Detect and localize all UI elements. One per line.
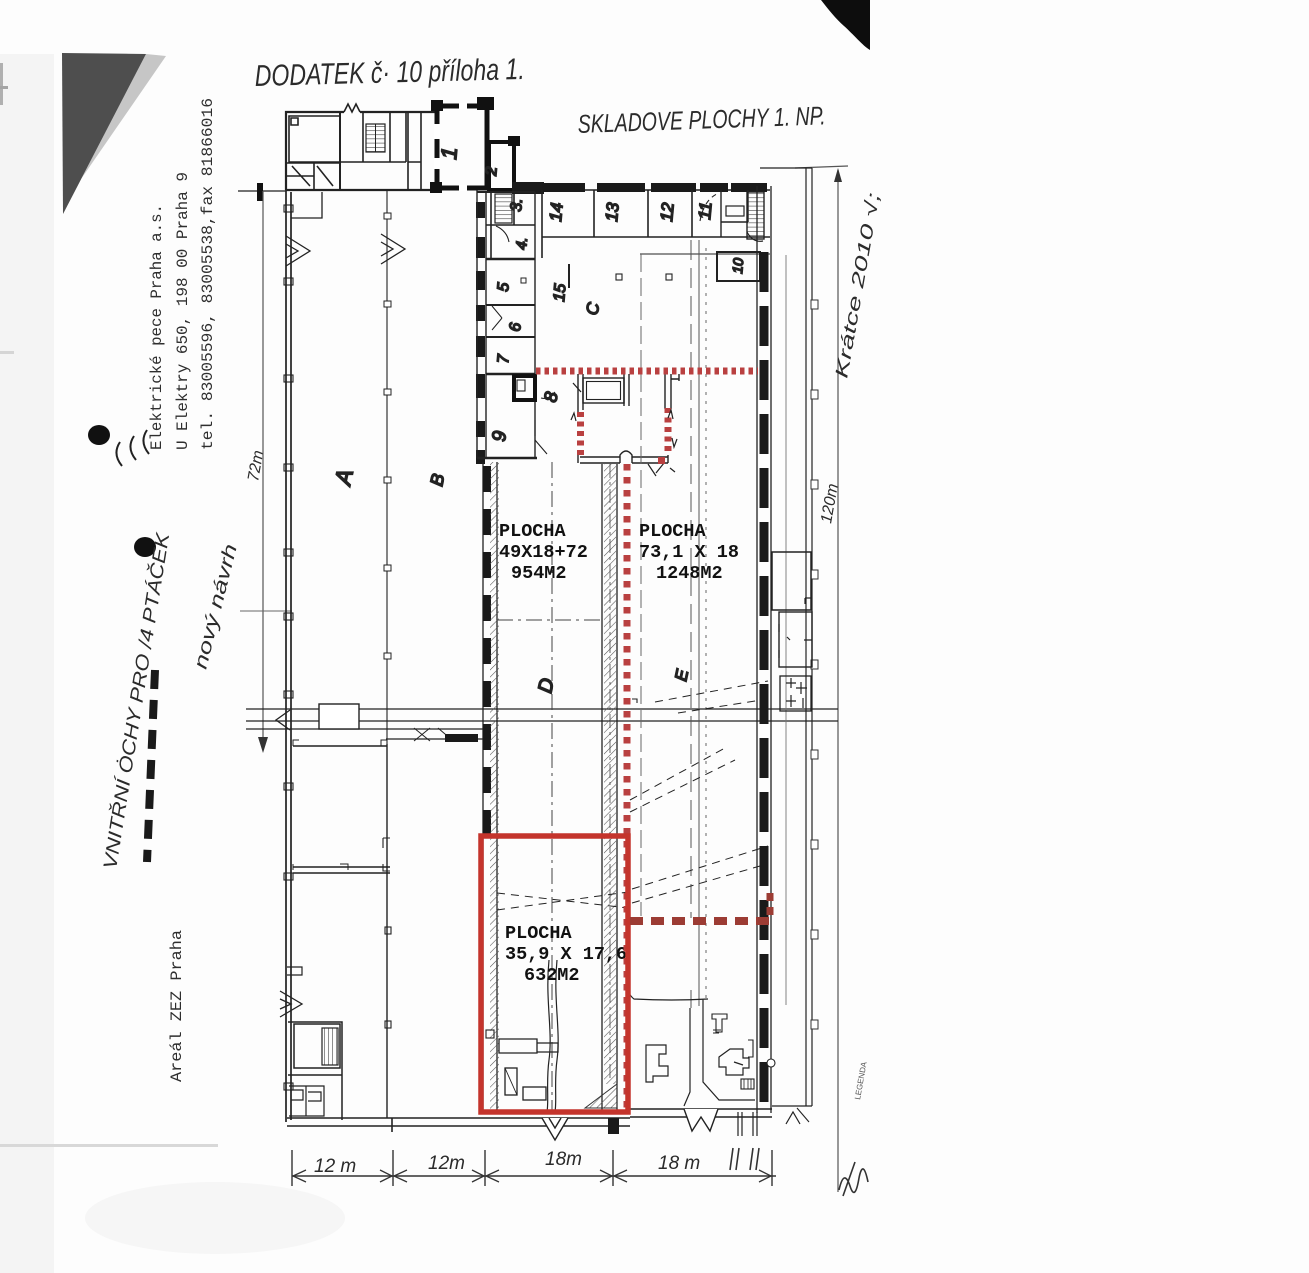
svg-text:3.: 3.: [508, 198, 526, 213]
svg-text:1248M2: 1248M2: [656, 563, 723, 584]
svg-text:tel. 83005596, 83005538,fax 81: tel. 83005596, 83005538,fax 81866016: [199, 98, 217, 450]
svg-text:6: 6: [507, 322, 525, 332]
svg-text:632M2: 632M2: [524, 965, 580, 986]
svg-text:PLOCHA: PLOCHA: [499, 521, 567, 542]
svg-text:1: 1: [436, 146, 462, 160]
svg-text:PLOCHA: PLOCHA: [505, 923, 573, 944]
svg-text:18 m: 18 m: [658, 1153, 700, 1174]
svg-text:15: 15: [551, 283, 569, 302]
svg-text:49X18+72: 49X18+72: [499, 542, 588, 563]
svg-text:U Elektry 650, 198 00 Praha 9: U Elektry 650, 198 00 Praha 9: [174, 172, 192, 450]
svg-text:DODATEK č· 10 příloha 1.: DODATEK č· 10 příloha 1.: [254, 53, 525, 93]
svg-text:14: 14: [546, 202, 567, 223]
svg-text:35,9 X 17,6: 35,9 X 17,6: [505, 944, 627, 965]
svg-text:Elektrické pece Praha a.s.: Elektrické pece Praha a.s.: [148, 204, 166, 450]
svg-text:954M2: 954M2: [511, 563, 567, 584]
svg-text:11: 11: [695, 201, 715, 220]
svg-text:73,1 X 18: 73,1 X 18: [639, 542, 739, 563]
svg-text:2: 2: [483, 166, 501, 177]
svg-text:10: 10: [729, 257, 746, 274]
svg-text:12 m: 12 m: [314, 1156, 356, 1177]
svg-text:12: 12: [657, 201, 678, 222]
svg-text:PLOCHA: PLOCHA: [639, 521, 707, 542]
svg-text:18m: 18m: [545, 1149, 582, 1170]
svg-text:5: 5: [495, 282, 513, 292]
svg-text:Areál ZEZ Praha: Areál ZEZ Praha: [168, 930, 186, 1082]
svg-text:13: 13: [602, 201, 623, 222]
svg-text:4.: 4.: [513, 236, 531, 250]
svg-text:12m: 12m: [428, 1153, 465, 1174]
